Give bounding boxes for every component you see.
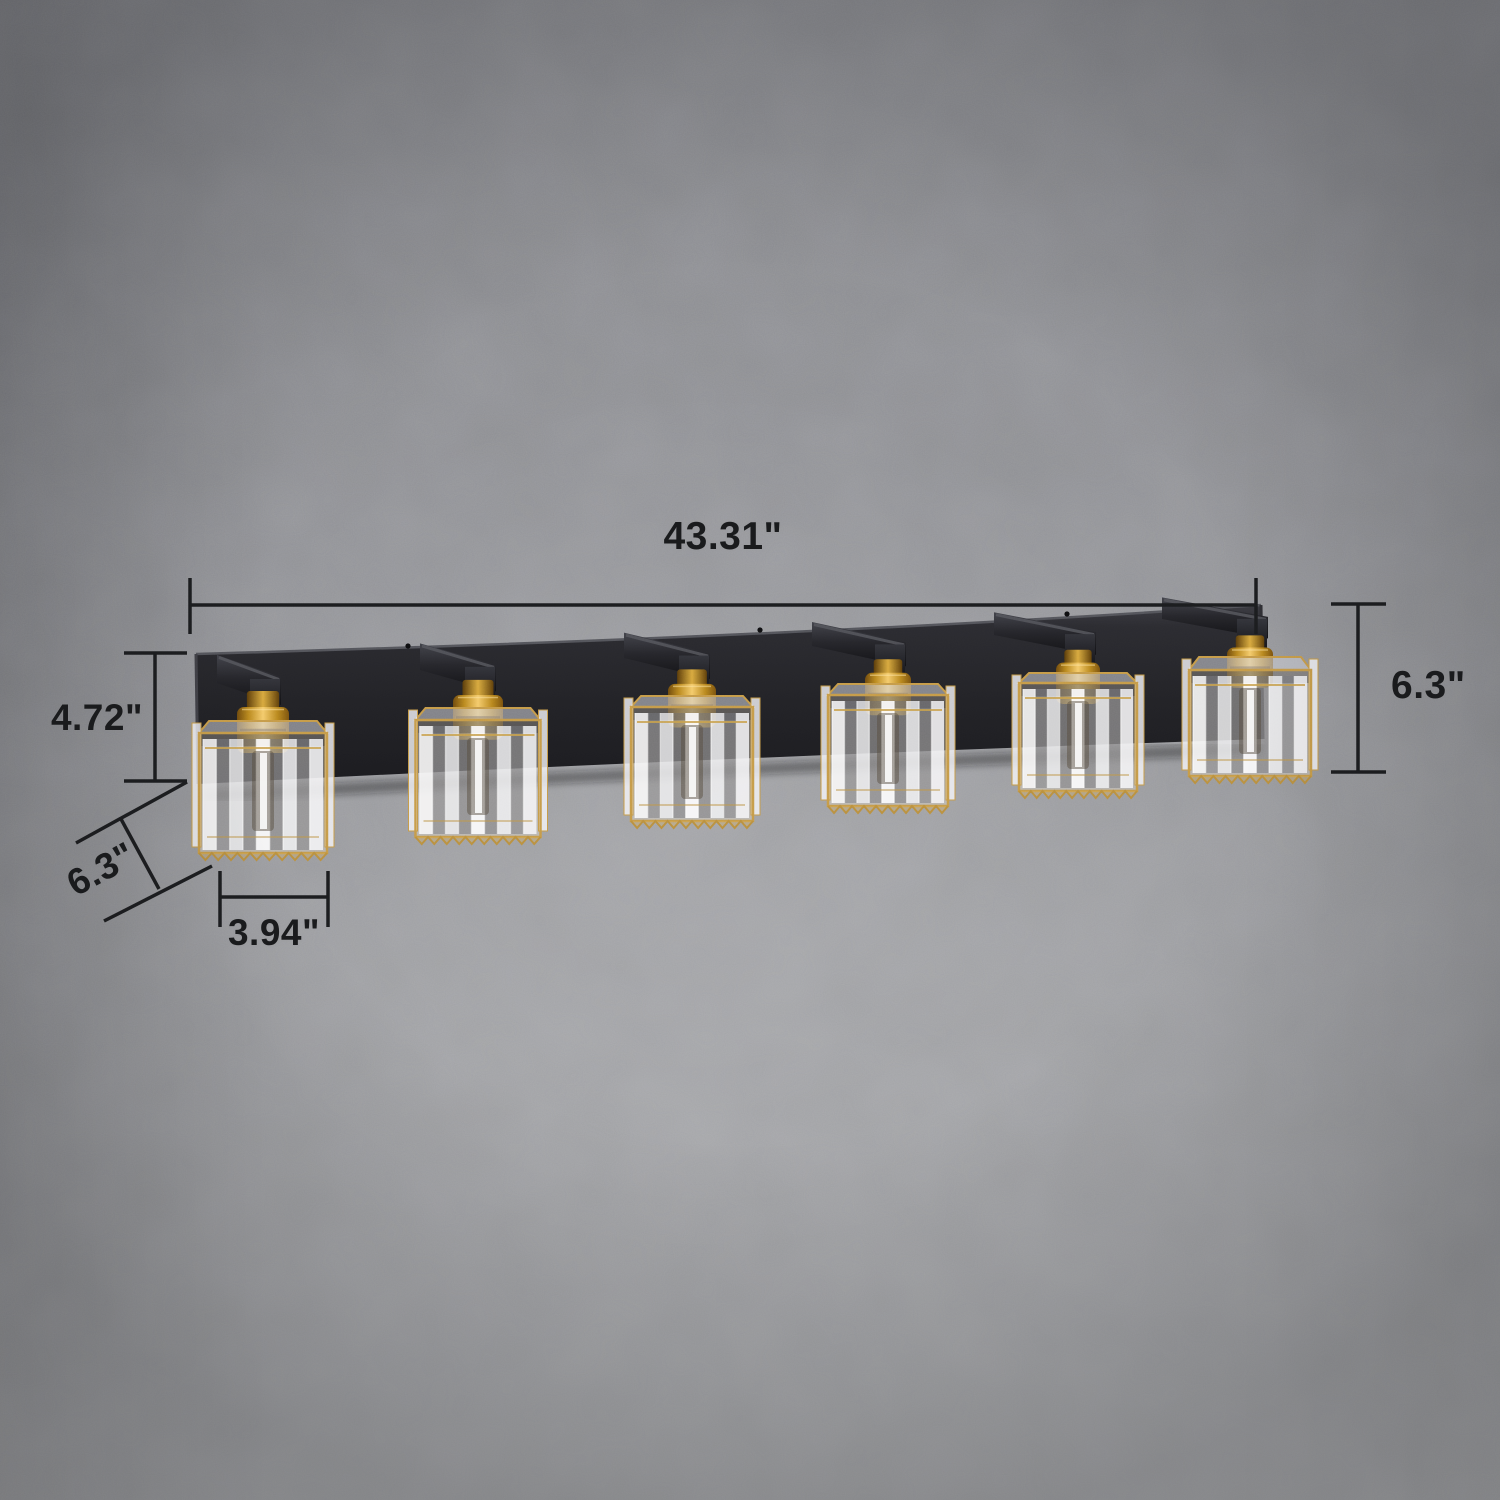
dimension-shade-width-label: 3.94" <box>228 914 320 951</box>
dimension-fixture-height-label: 6.3" <box>1391 666 1466 705</box>
photo-grain-texture <box>0 0 1500 1500</box>
dimension-overall-width-label: 43.31" <box>663 517 782 556</box>
dimension-backplate-height-label: 4.72" <box>51 699 143 736</box>
fixture-scene <box>0 0 1500 1500</box>
product-dimension-photo: 43.31" 4.72" 6.3" 6.3" 3.94" <box>0 0 1500 1500</box>
